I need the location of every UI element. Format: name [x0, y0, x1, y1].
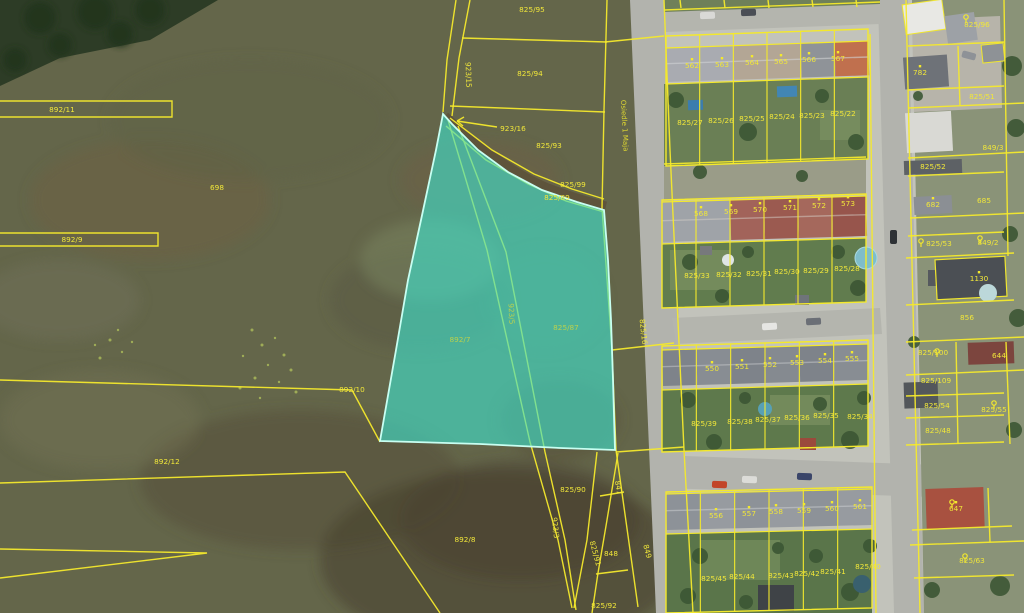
map-label: 568	[694, 209, 708, 218]
map-label: 825/42	[794, 569, 820, 578]
map-label: 825/94	[517, 69, 543, 78]
house-point-marker	[751, 55, 753, 57]
map-label: 825/51	[969, 92, 995, 101]
map-label: 825/100	[918, 348, 949, 357]
house-point-marker	[824, 353, 826, 355]
map-label: 825/40	[855, 562, 881, 571]
map-label: 849/2	[977, 238, 998, 247]
parcel-boundary	[724, 0, 725, 8]
house-point-marker	[700, 206, 702, 208]
house-point-marker	[796, 355, 798, 357]
map-label: 825/31	[746, 269, 772, 278]
map-label: 558	[769, 507, 783, 516]
map-label: 566	[802, 55, 816, 64]
map-label: 825/25	[739, 114, 765, 123]
map-label: 825/53	[926, 239, 952, 248]
cadastral-aerial-map: 825/95825/94923/16923/15825/93825/99825/…	[0, 0, 1024, 613]
map-label: 647	[949, 504, 963, 513]
house-point-marker	[919, 65, 921, 67]
map-label: 923/15	[464, 62, 474, 88]
house-point-marker	[803, 503, 805, 505]
parcel-boundary	[680, 0, 681, 8]
map-label: 825/22	[830, 109, 856, 118]
map-label: 825/37	[755, 415, 781, 424]
map-label: 825/35	[813, 411, 839, 420]
map-label: 570	[753, 205, 767, 214]
map-label: 825/43	[768, 571, 794, 580]
map-label: 556	[709, 511, 723, 520]
map-label: 562	[685, 61, 699, 70]
parcel-boundary	[768, 0, 769, 8]
house-point-marker	[789, 200, 791, 202]
map-label: 825/54	[924, 401, 950, 410]
map-label: 892/7	[449, 335, 470, 344]
map-label: 559	[797, 506, 811, 515]
map-label: 825/45	[701, 574, 727, 583]
map-label: 551	[735, 362, 749, 371]
map-label: 892/11	[49, 105, 75, 114]
map-label: 1130	[970, 274, 989, 283]
house-point-marker	[851, 351, 853, 353]
house-point-marker	[769, 357, 771, 359]
map-label: 567	[831, 54, 845, 63]
map-label: 573	[841, 199, 855, 208]
map-label: 825/41	[820, 567, 846, 576]
map-label: 892/10	[339, 385, 365, 394]
map-label: 825/90	[560, 485, 586, 494]
parcel-boundary	[812, 0, 813, 7]
map-label: 825/39	[691, 419, 717, 428]
map-label: 825/109	[921, 376, 952, 385]
house-point-marker	[711, 361, 713, 363]
map-label: 825/48	[925, 426, 951, 435]
map-label: 849/3	[982, 143, 1003, 152]
cadastral-map-viewport: 825/95825/94923/16923/15825/93825/99825/…	[0, 0, 1024, 613]
map-label: 825/30	[774, 267, 800, 276]
house-point-marker	[721, 57, 723, 59]
map-label: 550	[705, 364, 719, 373]
map-label: 825/24	[769, 112, 795, 121]
house-point-marker	[730, 204, 732, 206]
map-label: 569	[724, 207, 738, 216]
house-point-marker	[847, 196, 849, 198]
map-label: 825/28	[834, 264, 860, 273]
map-label: 825/95	[519, 5, 545, 14]
house-point-marker	[837, 51, 839, 53]
house-point-marker	[741, 359, 743, 361]
parcel-boundary	[856, 0, 857, 7]
map-label: 825/36	[784, 413, 810, 422]
map-label: 552	[763, 360, 777, 369]
map-label: 825/23	[799, 111, 825, 120]
map-label: 825/38	[727, 417, 753, 426]
map-label: 892/8	[454, 535, 475, 544]
map-label: 856	[960, 313, 974, 322]
map-label: 557	[742, 509, 756, 518]
map-label: 825/33	[684, 271, 710, 280]
map-label: 825/93	[536, 141, 562, 150]
map-label: 561	[853, 502, 867, 511]
map-label: 644	[992, 351, 1006, 360]
map-label: 555	[845, 354, 859, 363]
map-label: 571	[783, 203, 797, 212]
house-point-marker	[759, 202, 761, 204]
map-label: 825/92	[591, 601, 617, 610]
map-label: 825/29	[803, 266, 829, 275]
map-label: 892/9	[61, 235, 82, 244]
house-point-marker	[775, 504, 777, 506]
house-point-marker	[818, 198, 820, 200]
map-label: 682	[926, 200, 940, 209]
map-label: 825/34	[847, 412, 873, 421]
map-label: 825/89	[544, 193, 570, 202]
house-point-marker	[955, 501, 957, 503]
map-label: 825/32	[716, 270, 742, 279]
house-point-marker	[932, 197, 934, 199]
house-point-marker	[691, 58, 693, 60]
map-label: 923/5	[506, 303, 516, 324]
map-label: 923/16	[500, 124, 526, 133]
map-label: 825/26	[708, 116, 734, 125]
house-point-marker	[808, 52, 810, 54]
map-label: 564	[745, 58, 759, 67]
map-label: 848	[604, 549, 618, 558]
map-label: 698	[210, 183, 224, 192]
house-point-marker	[978, 271, 980, 273]
map-label: 825/52	[920, 162, 946, 171]
map-label: 553	[790, 358, 804, 367]
map-label: 825/44	[729, 572, 755, 581]
map-label: 782	[913, 68, 927, 77]
map-label: 892/12	[154, 457, 180, 466]
house-point-marker	[715, 508, 717, 510]
map-label: 563	[715, 60, 729, 69]
map-label: 554	[818, 356, 832, 365]
house-point-marker	[780, 54, 782, 56]
map-label: 825/27	[677, 118, 703, 127]
house-point-marker	[748, 506, 750, 508]
house-point-marker	[831, 501, 833, 503]
map-label: 825/87	[553, 323, 579, 332]
map-label: 572	[812, 201, 826, 210]
map-label: 560	[825, 504, 839, 513]
map-label: 825/99	[560, 180, 586, 189]
house-point-marker	[859, 499, 861, 501]
map-label: 685	[977, 196, 991, 205]
map-label: 825/96	[964, 20, 990, 29]
map-label: 565	[774, 57, 788, 66]
